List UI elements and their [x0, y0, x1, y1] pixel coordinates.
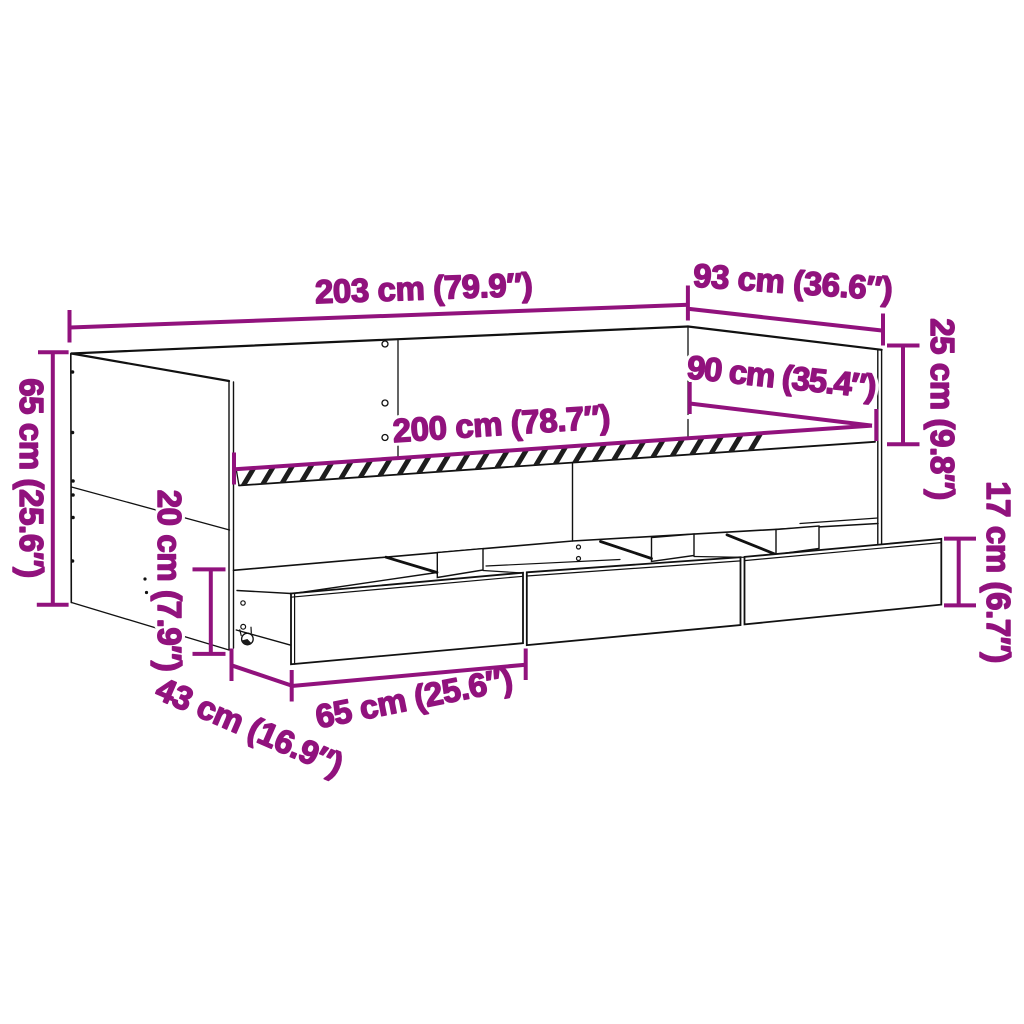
svg-text:17 cm (6.7″): 17 cm (6.7″): [980, 481, 1017, 663]
svg-text:203 cm (79.9″): 203 cm (79.9″): [314, 266, 533, 311]
svg-text:65 cm (25.6″): 65 cm (25.6″): [13, 378, 50, 578]
svg-text:20 cm (7.9″): 20 cm (7.9″): [151, 490, 188, 672]
svg-text:25 cm (9.8″): 25 cm (9.8″): [924, 318, 961, 500]
